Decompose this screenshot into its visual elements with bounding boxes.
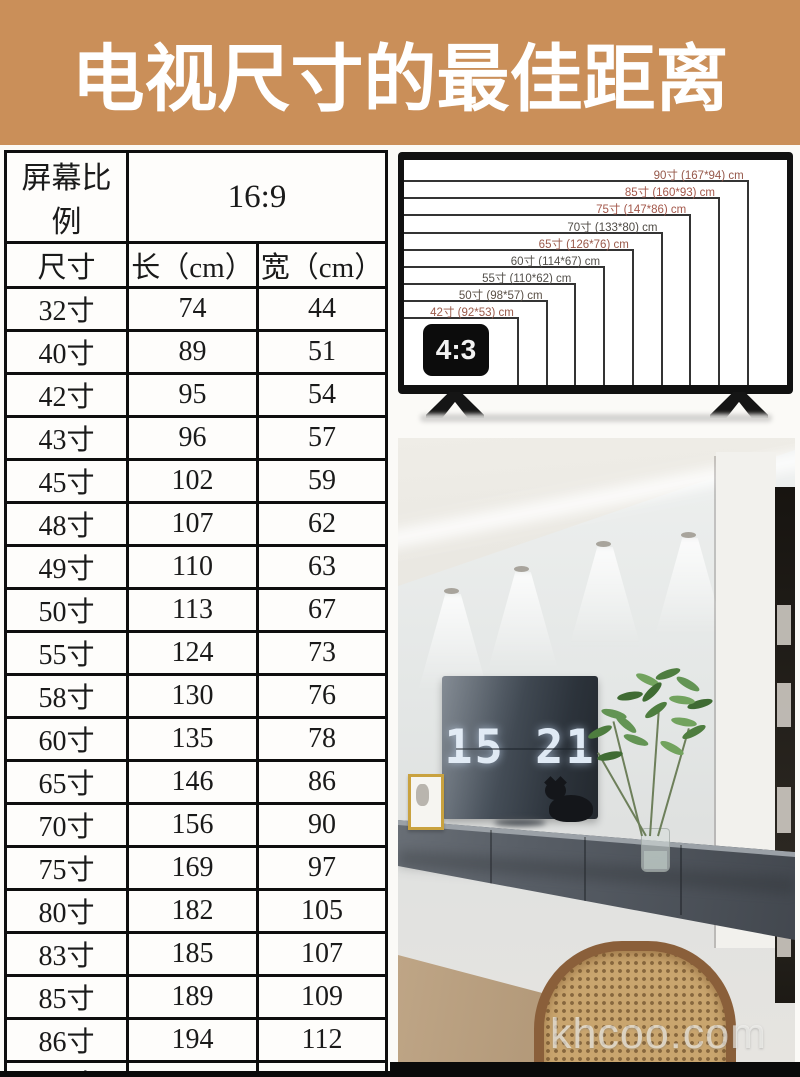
width-cell: 109 [258, 976, 387, 1019]
size-cell: 42寸 [6, 374, 128, 417]
length-cell: 182 [128, 890, 258, 933]
table-row: 42寸9554 [6, 374, 387, 417]
infographic-page: 电视尺寸的最佳距离 屏幕比例16:9尺寸长（cm）宽（cm）32寸744440寸… [0, 0, 800, 1077]
downlight-icon [596, 541, 611, 547]
size-cell: 43寸 [6, 417, 128, 460]
width-cell: 97 [258, 847, 387, 890]
table-row: 85寸189109 [6, 976, 387, 1019]
table-row: 65寸14686 [6, 761, 387, 804]
size-cell: 85寸 [6, 976, 128, 1019]
width-cell: 86 [258, 761, 387, 804]
ratio-label-cell: 屏幕比例 [6, 152, 128, 243]
length-cell: 146 [128, 761, 258, 804]
picture-frame [408, 774, 444, 830]
size-rect-label: 75寸 (147*86) cm [596, 201, 686, 217]
table-row: 48寸10762 [6, 503, 387, 546]
size-rect-label: 85寸 (160*93) cm [625, 184, 715, 200]
shelf-compartment [777, 683, 791, 727]
size-cell: 45寸 [6, 460, 128, 503]
size-cell: 65寸 [6, 761, 128, 804]
size-cell: 55寸 [6, 632, 128, 675]
table-row: 80寸182105 [6, 890, 387, 933]
width-cell: 67 [258, 589, 387, 632]
cat-head [545, 781, 566, 800]
table-row: 43寸9657 [6, 417, 387, 460]
plant-leaf [675, 674, 702, 694]
tv-size-diagram: 4:3 90寸 (167*94) cm85寸 (160*93) cm75寸 (1… [398, 152, 795, 430]
title-banner: 电视尺寸的最佳距离 [0, 0, 800, 145]
width-cell: 105 [258, 890, 387, 933]
size-cell: 86寸 [6, 1019, 128, 1062]
table-row: 58寸13076 [6, 675, 387, 718]
length-cell: 89 [128, 331, 258, 374]
width-cell: 59 [258, 460, 387, 503]
length-cell: 130 [128, 675, 258, 718]
length-cell: 74 [128, 288, 258, 331]
plant-stem [597, 752, 646, 836]
width-cell: 62 [258, 503, 387, 546]
plant-leaf [622, 732, 649, 748]
living-room-photo: 15 21 khcoo.com [398, 438, 795, 1062]
downlight-icon [681, 532, 696, 538]
table-row: 70寸15690 [6, 804, 387, 847]
length-cell: 135 [128, 718, 258, 761]
column-header-0: 尺寸 [6, 243, 128, 288]
width-cell: 112 [258, 1019, 387, 1062]
size-cell: 70寸 [6, 804, 128, 847]
size-cell: 80寸 [6, 890, 128, 933]
size-cell: 40寸 [6, 331, 128, 374]
tv-size-table-body: 屏幕比例16:9尺寸长（cm）宽（cm）32寸744440寸895142寸955… [6, 152, 387, 1077]
tv-shadow [420, 414, 772, 422]
size-rect-label: 90寸 (167*94) cm [654, 167, 744, 183]
length-cell: 95 [128, 374, 258, 417]
table-row: 50寸11367 [6, 589, 387, 632]
table-row: 83寸185107 [6, 933, 387, 976]
downlight-icon [514, 566, 529, 572]
size-rect-label: 42寸 (92*53) cm [430, 304, 514, 320]
shelf-compartment [777, 605, 791, 645]
shelf-compartment [777, 787, 791, 833]
table-row: 32寸7444 [6, 288, 387, 331]
length-cell: 107 [128, 503, 258, 546]
size-rect-label: 70寸 (133*80) cm [567, 219, 657, 235]
size-rect: 42寸 (92*53) cm [404, 317, 519, 385]
length-cell: 102 [128, 460, 258, 503]
width-cell: 63 [258, 546, 387, 589]
width-cell: 78 [258, 718, 387, 761]
table-row: 75寸16997 [6, 847, 387, 890]
plant-leaf [643, 699, 669, 720]
page-title: 电视尺寸的最佳距离 [72, 20, 729, 126]
column-header-2: 宽（cm） [258, 243, 387, 288]
size-rect-label: 55寸 (110*62) cm [482, 270, 571, 286]
length-cell: 110 [128, 546, 258, 589]
plant-leaf [669, 694, 696, 706]
size-cell: 75寸 [6, 847, 128, 890]
table-row: 40寸8951 [6, 331, 387, 374]
vase-water [644, 851, 667, 869]
table-row: 86寸194112 [6, 1019, 387, 1062]
size-cell: 49寸 [6, 546, 128, 589]
size-cell: 50寸 [6, 589, 128, 632]
length-cell: 113 [128, 589, 258, 632]
table-row: 60寸13578 [6, 718, 387, 761]
watermark-text: khcoo.com [550, 1010, 767, 1059]
tv-mount-shadow [494, 819, 546, 826]
plant-stem [649, 708, 659, 836]
plant-leaf [587, 723, 614, 741]
length-cell: 96 [128, 417, 258, 460]
length-cell: 169 [128, 847, 258, 890]
light-cone [484, 572, 562, 684]
size-cell: 60寸 [6, 718, 128, 761]
framed-photo [416, 784, 429, 806]
width-cell: 51 [258, 331, 387, 374]
size-cell: 58寸 [6, 675, 128, 718]
table-row: 49寸11063 [6, 546, 387, 589]
column-header-1: 长（cm） [128, 243, 258, 288]
plant-leaf [617, 690, 644, 702]
width-cell: 76 [258, 675, 387, 718]
bottom-black-strip [0, 1071, 800, 1077]
width-cell: 44 [258, 288, 387, 331]
width-cell: 90 [258, 804, 387, 847]
size-rect-label: 50寸 (98*57) cm [459, 287, 543, 303]
width-cell: 57 [258, 417, 387, 460]
width-cell: 54 [258, 374, 387, 417]
tv-size-table: 屏幕比例16:9尺寸长（cm）宽（cm）32寸744440寸895142寸955… [4, 150, 388, 1077]
plant-leaf [596, 749, 623, 762]
light-cone [566, 547, 644, 659]
length-cell: 185 [128, 933, 258, 976]
size-rect-label: 65寸 (126*76) cm [539, 236, 629, 252]
size-cell: 48寸 [6, 503, 128, 546]
length-cell: 156 [128, 804, 258, 847]
size-cell: 83寸 [6, 933, 128, 976]
ratio-value-cell: 16:9 [128, 152, 387, 243]
table-row: 45寸10259 [6, 460, 387, 503]
potted-plant [583, 666, 713, 872]
width-cell: 107 [258, 933, 387, 976]
length-cell: 124 [128, 632, 258, 675]
downlight-icon [444, 588, 459, 594]
width-cell: 73 [258, 632, 387, 675]
tv-screen-area: 4:3 90寸 (167*94) cm85寸 (160*93) cm75寸 (1… [404, 160, 787, 385]
length-cell: 189 [128, 976, 258, 1019]
size-cell: 32寸 [6, 288, 128, 331]
tv-outline: 4:3 90寸 (167*94) cm85寸 (160*93) cm75寸 (1… [398, 152, 793, 394]
table-row: 55寸12473 [6, 632, 387, 675]
length-cell: 194 [128, 1019, 258, 1062]
size-rect-label: 60寸 (114*67) cm [511, 253, 600, 269]
